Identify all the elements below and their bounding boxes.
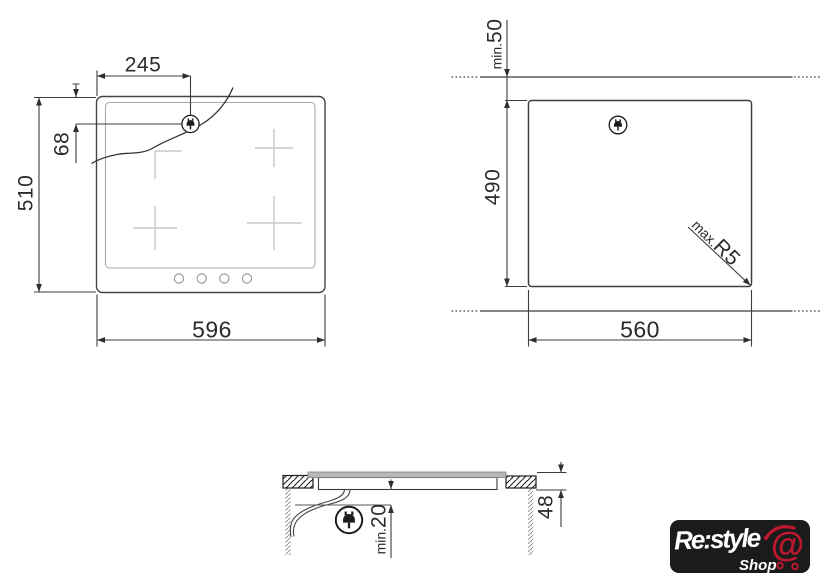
hob-top-view — [34, 71, 325, 347]
dim-label-bottom-clearance: min.20 — [369, 504, 390, 555]
power-plug-icon — [609, 116, 627, 134]
dim-value-20: 20 — [368, 504, 391, 528]
technical-line-art — [0, 0, 840, 582]
installation-drawing-canvas: 245 68 510 596 min.50 490 560 max.R5 min… — [0, 0, 840, 582]
dim-label-back-clearance: min.50 — [485, 19, 506, 70]
dim-label-hob-depth: 510 — [16, 175, 37, 212]
dim-label-plug-offset-x: 245 — [125, 55, 162, 76]
worktop-section-right — [506, 476, 536, 488]
dim-label-cutout-depth: 490 — [483, 169, 504, 206]
control-button — [242, 274, 251, 283]
ext-line — [505, 101, 527, 287]
cart-handle-icon — [766, 527, 794, 538]
ext-line — [536, 473, 567, 491]
control-button — [220, 274, 229, 283]
hob-glass-section — [308, 472, 506, 478]
dim-label-plug-offset-y: 68 — [52, 132, 73, 156]
dim-value-50: 50 — [484, 19, 507, 43]
dim-label-hob-width: 596 — [192, 319, 232, 342]
cabinet-side-wall — [528, 488, 533, 555]
ext-line — [34, 98, 96, 293]
cabinet-side-wall — [286, 488, 291, 555]
dim-label-hob-height: 48 — [536, 495, 557, 519]
cart-wheel-icon — [777, 563, 783, 569]
cutout-view — [452, 20, 820, 347]
power-plug-icon — [182, 115, 199, 132]
cart-icon-strokes — [670, 520, 810, 573]
hob-outline — [97, 97, 326, 293]
restyle-shop-logo: Re:style Shop @ — [670, 520, 810, 573]
dim-prefix-min: min. — [373, 528, 389, 554]
hob-body-section — [319, 478, 498, 490]
cart-handle-grip — [764, 536, 768, 540]
control-button — [174, 274, 183, 283]
control-button — [197, 274, 206, 283]
dim-prefix-min: min. — [489, 43, 505, 69]
dim-label-cutout-width: 560 — [620, 319, 660, 342]
power-plug-icon — [336, 507, 362, 533]
section-view — [283, 462, 567, 558]
cart-wheel-icon — [792, 564, 798, 570]
